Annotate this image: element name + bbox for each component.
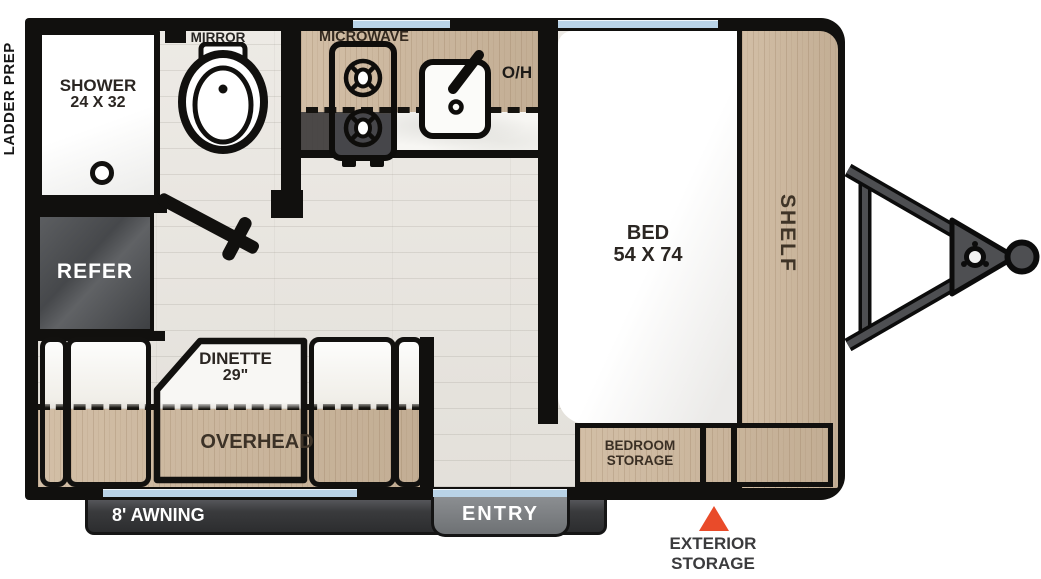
dinette-size-label: 29" — [173, 368, 298, 385]
dinette-seat-right — [309, 337, 396, 487]
entry-door-tab: ENTRY — [431, 497, 570, 537]
toilet-icon — [178, 42, 268, 156]
dinette-label: DINETTE — [173, 350, 298, 368]
entry-label: ENTRY — [434, 504, 567, 525]
shower-label: SHOWER — [42, 77, 154, 95]
bed-label: BED — [558, 223, 738, 244]
ladder-prep-label: LADDER PREP — [2, 19, 18, 179]
kitchen-bed-wall — [538, 31, 558, 424]
awning-label: 8' AWNING — [112, 506, 205, 525]
window-strip — [353, 20, 450, 28]
window-strip — [103, 489, 357, 497]
window-strip — [433, 489, 567, 497]
bed: BED 54 X 74 — [558, 31, 738, 424]
dinette-armrest-left — [40, 337, 68, 487]
shower: SHOWER 24 X 32 — [36, 29, 160, 201]
bedroom-storage-bench: BEDROOM STORAGE — [575, 423, 833, 487]
shelf-label: SHELF — [776, 194, 798, 273]
bedroom-storage-label-2: STORAGE — [580, 454, 700, 468]
drain-icon — [90, 161, 114, 185]
sink-icon — [417, 50, 497, 144]
bedside-shelf: SHELF — [737, 31, 838, 488]
bedroom-storage-label-1: BEDROOM — [580, 439, 700, 453]
shower-size-label: 24 X 32 — [42, 95, 154, 112]
window-strip — [558, 20, 718, 28]
dinette-overhead-label: OVERHEAD — [157, 432, 357, 453]
exterior-storage-label-2: STORAGE — [637, 555, 789, 573]
door-swing-icon — [140, 185, 310, 280]
bed-size-label: 54 X 74 — [558, 245, 738, 266]
cooktop-icon — [329, 40, 399, 170]
refrigerator: REFER — [36, 213, 154, 333]
dinette-end-wall — [420, 337, 434, 487]
kitchen-oh-label: O/H — [492, 64, 542, 82]
refer-label: REFER — [40, 261, 150, 283]
rv-floorplan: LADDER PREP SHOWER 24 X 32 MIRROR — [0, 0, 1041, 579]
storage-divider — [700, 428, 706, 482]
triangle-marker-icon — [699, 506, 729, 531]
exterior-storage-label-1: EXTERIOR — [637, 535, 789, 553]
hitch-icon — [840, 140, 1040, 375]
dinette-seat-left — [66, 337, 151, 487]
storage-divider — [731, 428, 737, 482]
